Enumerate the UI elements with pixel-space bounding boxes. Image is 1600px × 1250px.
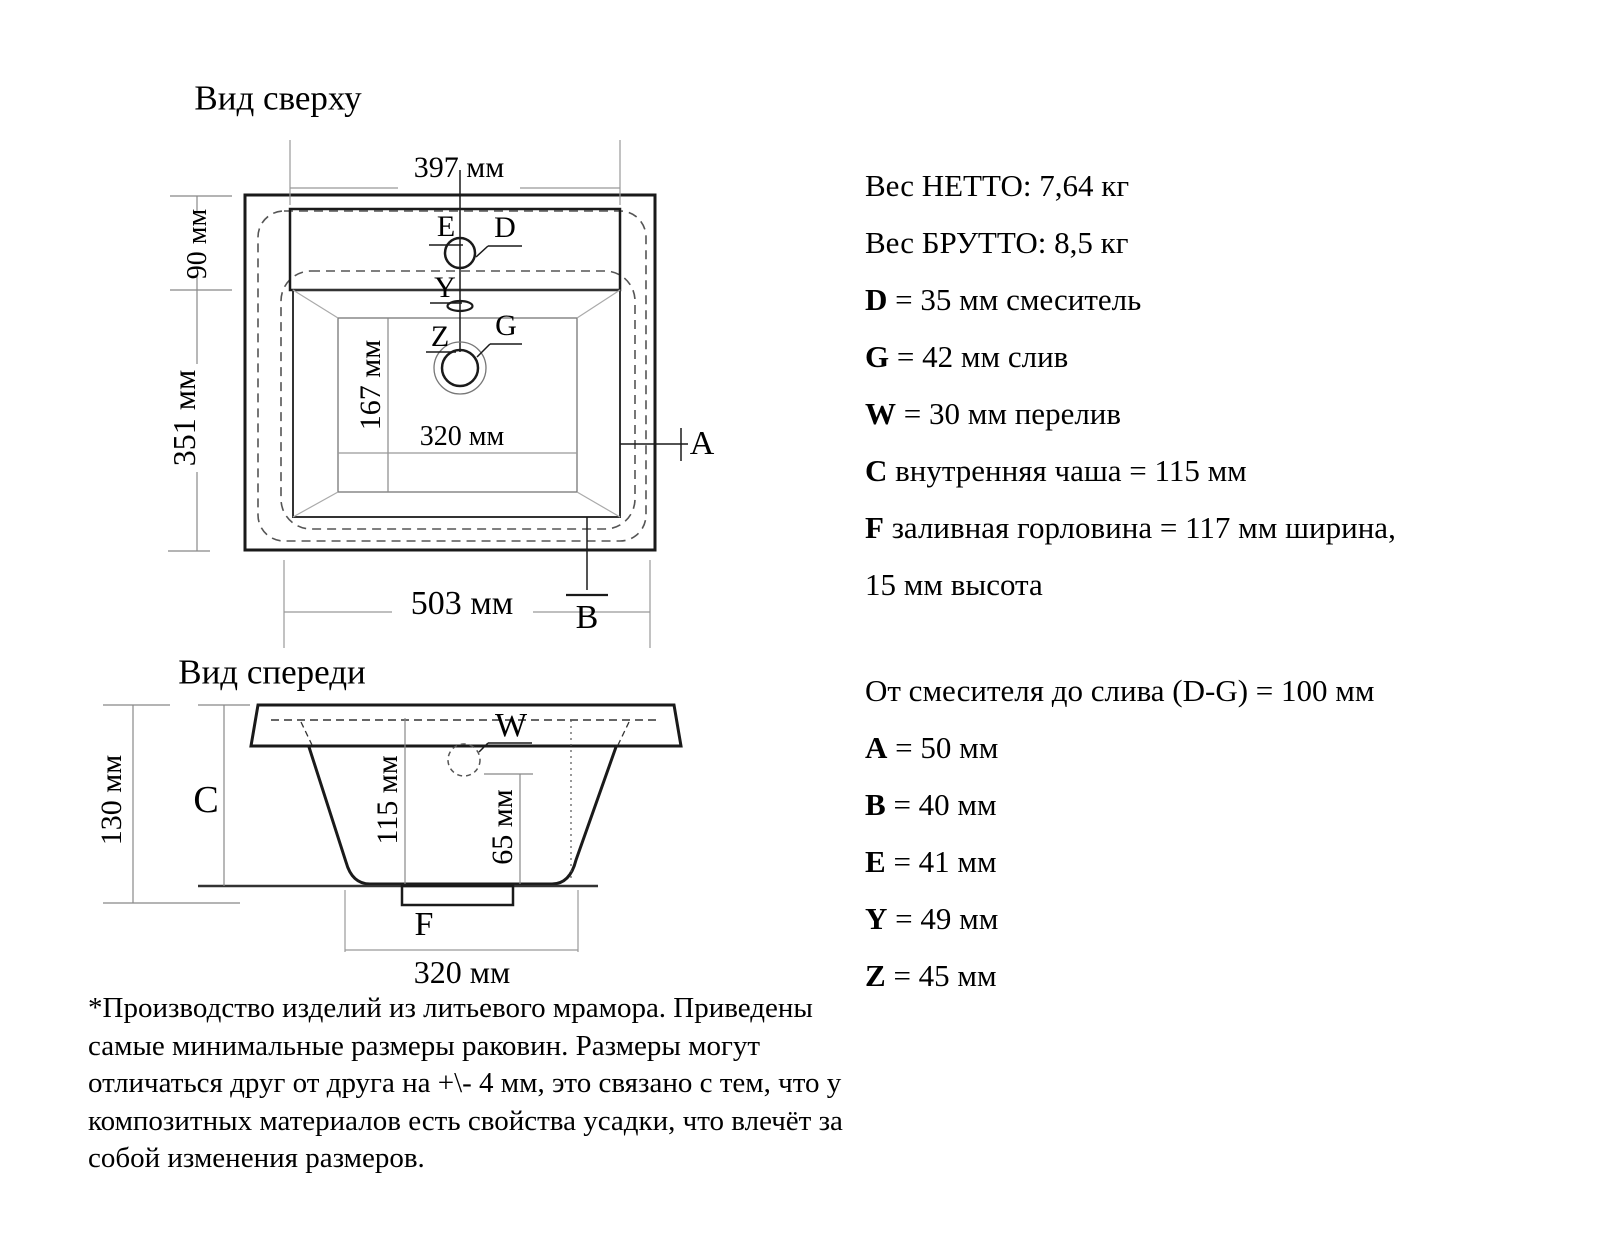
top-bowl-slope-lines bbox=[293, 290, 620, 517]
footnote-line: композитных материалов есть свойства уса… bbox=[88, 1103, 843, 1141]
spec-b: B = 40 мм bbox=[865, 776, 1396, 833]
technical-drawing-page: Вид сверху 397 мм 90 мм 351 мм 167 мм 32… bbox=[0, 0, 1600, 1250]
spec-gross-weight: Вес БРУТТО: 8,5 кг bbox=[865, 214, 1396, 271]
footnote-line: собой изменения размеров. bbox=[88, 1140, 843, 1178]
filling-neck-rect bbox=[402, 886, 513, 905]
spec-f-neck-height: 15 мм высота bbox=[865, 556, 1396, 613]
dim-130-label: 130 мм bbox=[97, 755, 127, 845]
spec-dg-distance: От смесителя до слива (D-G) = 100 мм bbox=[865, 662, 1396, 719]
section-label-b: B bbox=[576, 601, 599, 635]
top-outer-rect bbox=[245, 195, 655, 550]
front-bowl-profile bbox=[309, 747, 616, 884]
dim-351-label: 351 мм bbox=[168, 370, 200, 467]
dim-320-top-label: 320 мм bbox=[420, 423, 504, 451]
production-footnote: *Производство изделий из литьевого мрамо… bbox=[88, 990, 843, 1178]
dim-320-front-lines bbox=[345, 890, 578, 952]
front-deck-hidden-slant-right bbox=[618, 722, 629, 745]
front-view-title: Вид спереди bbox=[178, 655, 366, 690]
footnote-line: *Производство изделий из литьевого мрамо… bbox=[88, 990, 843, 1028]
dim-90-label: 90 мм bbox=[184, 209, 212, 279]
front-deck-slab bbox=[251, 705, 681, 746]
spec-g-drain: G = 42 мм слив bbox=[865, 328, 1396, 385]
spec-f-neck: F заливная горловина = 117 мм ширина, bbox=[865, 499, 1396, 556]
spec-y: Y = 49 мм bbox=[865, 890, 1396, 947]
hole-label-d: D bbox=[494, 213, 516, 243]
section-label-a: A bbox=[690, 427, 715, 461]
hole-label-y: Y bbox=[434, 273, 456, 303]
footnote-line: отличаться друг от друга на +\- 4 мм, эт… bbox=[88, 1065, 843, 1103]
hole-label-g: G bbox=[495, 311, 517, 341]
spec-a: A = 50 мм bbox=[865, 719, 1396, 776]
footnote-line: самые минимальные размеры раковин. Разме… bbox=[88, 1028, 843, 1066]
dim-65-label: 65 мм bbox=[488, 789, 518, 864]
spec-e: E = 41 мм bbox=[865, 833, 1396, 890]
front-deck-hidden-slant-left bbox=[301, 722, 312, 745]
hole-label-z: Z bbox=[431, 322, 449, 352]
neck-label-f: F bbox=[415, 908, 434, 942]
spec-w-overflow: W = 30 мм перелив bbox=[865, 385, 1396, 442]
overflow-hole-circle bbox=[448, 744, 480, 776]
top-view-drawing bbox=[168, 140, 688, 648]
bowl-depth-label-c: C bbox=[193, 781, 218, 819]
overflow-label-w: W bbox=[495, 709, 527, 743]
dim-115-label: 115 мм bbox=[373, 755, 403, 844]
dim-397-label: 397 мм bbox=[414, 153, 504, 183]
spec-z: Z = 45 мм bbox=[865, 947, 1396, 1004]
drain-inner-circle bbox=[442, 350, 478, 386]
top-view-title: Вид сверху bbox=[194, 81, 361, 116]
hole-label-e: E bbox=[437, 212, 455, 242]
spec-d-faucet: D = 35 мм смеситель bbox=[865, 271, 1396, 328]
top-hidden-edge-bowl bbox=[281, 271, 635, 529]
dim-167-label: 167 мм bbox=[356, 340, 386, 430]
spec-list: Вес НЕТТО: 7,64 кг Вес БРУТТО: 8,5 кг D … bbox=[865, 157, 1396, 1004]
dim-320-front-label: 320 мм bbox=[414, 956, 511, 988]
top-bowl-rim-rect bbox=[293, 290, 620, 517]
spec-c-bowl: C внутренняя чаша = 115 мм bbox=[865, 442, 1396, 499]
spec-net-weight: Вес НЕТТО: 7,64 кг bbox=[865, 157, 1396, 214]
dim-503-label: 503 мм bbox=[411, 587, 514, 621]
